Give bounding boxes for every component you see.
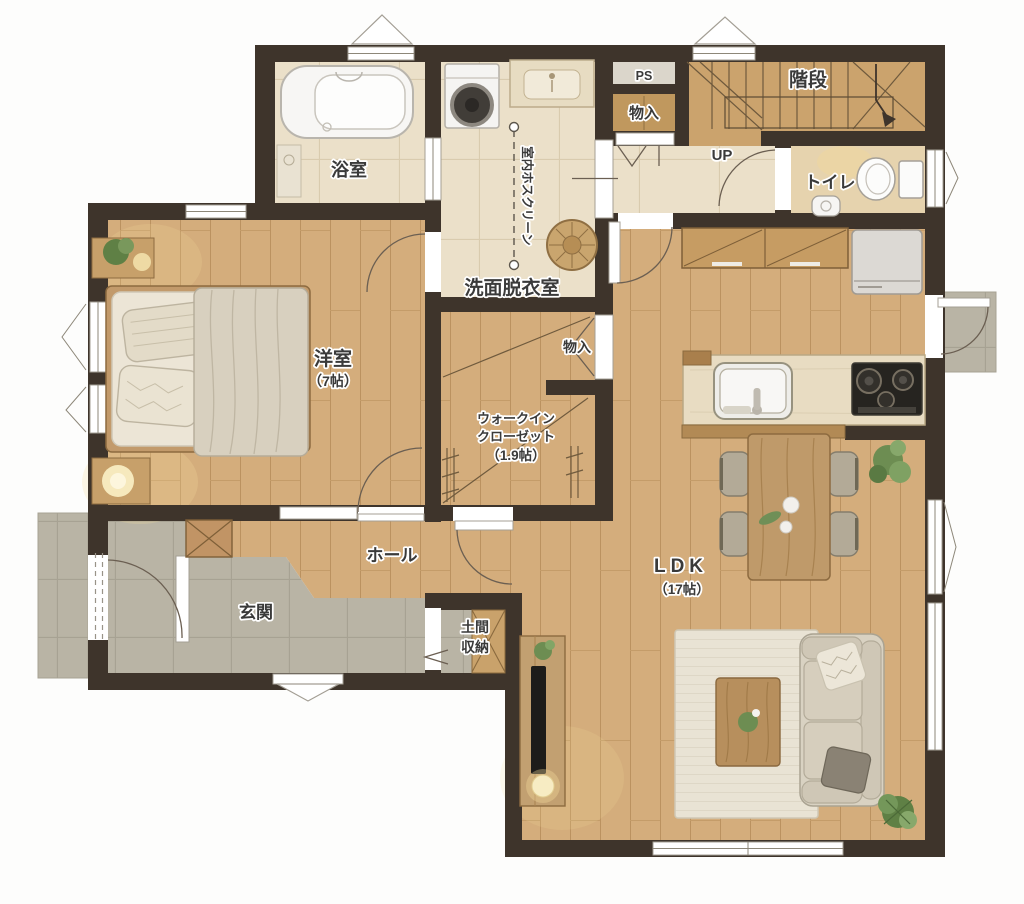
table-lamp (133, 253, 151, 271)
vanity-faucet (549, 73, 555, 79)
wic-door-leaf (455, 521, 513, 530)
bed (106, 286, 310, 456)
label-bedroom: 洋室 (314, 347, 352, 370)
label-washroom: 洗面脱衣室 (464, 276, 559, 299)
floor-plan-drawing: PS 物入 階段 UP トイレ 浴室 室内ホスクリーン 洗面脱衣室 物入 洋室 … (0, 0, 1024, 904)
ldk-door-leaf (609, 222, 620, 283)
porch-step-mark (273, 674, 343, 684)
label-wic-2: クローゼット (477, 429, 555, 444)
label-wic-size: （1.9帖） (486, 447, 545, 463)
floor-plan: PS 物入 階段 UP トイレ 浴室 室内ホスクリーン 洗面脱衣室 物入 洋室 … (0, 0, 1024, 904)
front-door-leaf (176, 556, 189, 642)
toilet-door-opening (775, 148, 791, 210)
porch-step-triangle (277, 684, 339, 701)
dining-chair (720, 512, 750, 556)
shoe-cabinet (186, 520, 232, 557)
dining-chair (828, 452, 858, 496)
floor-lamp (110, 473, 126, 489)
bedroom-door-leaf (358, 514, 424, 521)
back-door-leaf (938, 298, 990, 307)
front-door-opening (88, 555, 108, 640)
blanket (194, 288, 308, 456)
wall-cabinet (682, 228, 848, 268)
bath-counter (277, 145, 301, 197)
casement-mark (946, 152, 958, 204)
stairs-entry-opening (689, 131, 761, 146)
entry-porch (38, 513, 88, 678)
toilet-hand-sink (812, 196, 840, 216)
plant (545, 640, 555, 650)
label-up: UP (712, 147, 733, 164)
ldk-door-opening (618, 213, 673, 229)
dining-chair (720, 452, 750, 496)
bed-pillow (116, 365, 201, 428)
label-bathroom: 浴室 (331, 159, 367, 180)
label-bedroom-size: （7帖） (308, 373, 358, 389)
sofa-pillow (820, 746, 871, 794)
bedroom-washroom-door-opening (425, 232, 441, 292)
label-entrance: 玄関 (239, 602, 273, 622)
label-hoscreen: 室内ホスクリーン (520, 146, 535, 245)
gable-mark (352, 15, 412, 44)
sofa (800, 634, 884, 806)
bathtub-inner (315, 75, 405, 129)
wic-door-opening (453, 507, 513, 521)
stove-grill (858, 407, 916, 413)
refrigerator (852, 230, 922, 294)
casement-mark (62, 304, 86, 370)
storage-mid-door (595, 315, 613, 379)
gable-mark (695, 17, 755, 44)
corridor-floor (613, 145, 775, 213)
label-ldk: LDK (654, 556, 708, 577)
bedroom-sliding-panel (280, 507, 357, 519)
tv (531, 666, 546, 774)
kitchen-sink (714, 363, 792, 419)
label-storage-mid: 物入 (563, 339, 591, 355)
label-ldk-size: （17帖） (654, 581, 710, 597)
label-ps: PS (636, 69, 653, 83)
coffee-table (716, 678, 780, 766)
gas-stove (852, 363, 922, 415)
label-stairs: 階段 (789, 68, 828, 91)
floor-lamp (532, 775, 554, 797)
casement-mark (66, 387, 86, 432)
label-hall: ホール (367, 546, 418, 565)
storage-top-door (616, 133, 674, 145)
label-toilet: トイレ (805, 173, 856, 192)
laundry-basket-center (563, 236, 581, 254)
dining-chair (828, 512, 858, 556)
toilet-tank (899, 161, 923, 198)
label-doma-2: 収納 (461, 639, 489, 655)
label-doma-1: 土間 (461, 619, 489, 635)
casement-mark (944, 502, 956, 592)
tv-board (520, 636, 565, 806)
dining-table (748, 434, 830, 580)
label-storage-top: 物入 (629, 104, 659, 122)
label-wic-1: ウォークイン (477, 411, 555, 426)
plant (118, 238, 134, 254)
